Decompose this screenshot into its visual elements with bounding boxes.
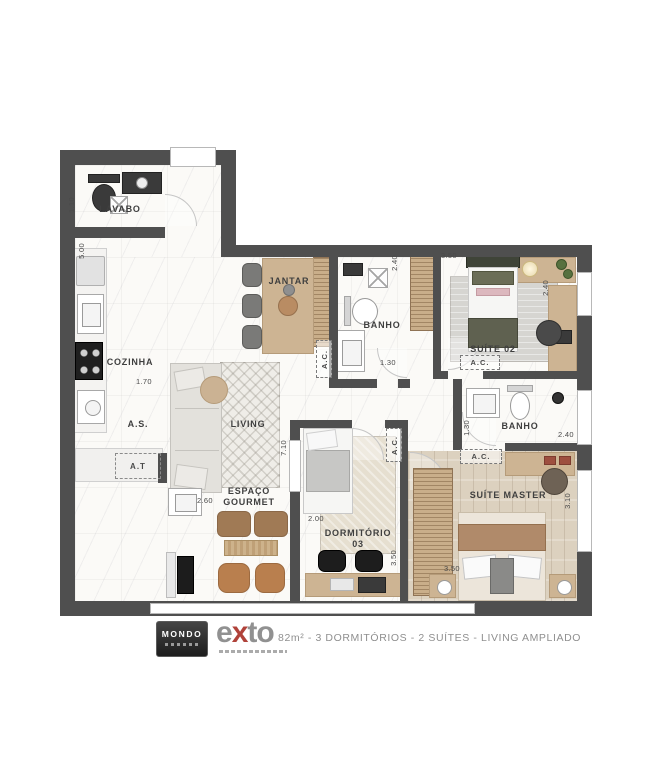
banho2-toilet [510, 392, 530, 420]
vanity-accessory [559, 456, 571, 465]
dim-lavabo-width: 1.10 [67, 197, 76, 213]
entry-door [170, 147, 216, 167]
banho2-window [577, 390, 592, 445]
nightstand-lamp [437, 580, 452, 595]
banho1-shower-head [343, 263, 363, 276]
plant-icon [563, 269, 573, 279]
dorm03-label-line1: DORMITÓRIO [308, 528, 408, 539]
dim-dorm03-width: 2.00 [308, 514, 324, 523]
banho1-vanity [337, 330, 365, 372]
ac-label: A.C. [320, 350, 329, 369]
room-label-jantar: JANTAR [259, 276, 319, 287]
ac-box-banho2: A.C. [460, 449, 502, 464]
washing-machine [77, 390, 105, 424]
dim-master-width: 3.50 [444, 564, 460, 573]
sofa-pillow [174, 464, 209, 490]
dim-banho2-height: 1.30 [462, 420, 471, 436]
floor-plan-page: LAVABO COZINHA JANTAR BANHO SUÍTE 02 LIV… [0, 0, 662, 768]
nightstand-lamp [557, 580, 572, 595]
ac-label: A.C. [390, 436, 399, 455]
dorm03-window [289, 440, 301, 492]
room-label-suite02: SUÍTE 02 [453, 344, 533, 355]
dim-suite02-width: 3.50 [441, 251, 457, 260]
suite-master-blanket [458, 524, 546, 551]
dim-banho1-height: 2.40 [390, 255, 399, 271]
wall-dorm03-top [290, 420, 352, 428]
dim-cozinha-height: 5.00 [77, 243, 86, 259]
gourmet-pouf [254, 511, 288, 537]
exto-letter-x: x [232, 616, 248, 649]
suite02-lamp [522, 261, 538, 277]
gourmet-bench [224, 540, 278, 556]
suite02-pillow [472, 271, 514, 285]
table-decor-bowl [278, 296, 298, 316]
nightstand [549, 574, 576, 598]
wall-top-main [221, 245, 592, 257]
exto-letters-to: to [247, 616, 273, 649]
banho2-sink [466, 388, 500, 418]
wall-banho1-bottom [329, 379, 377, 388]
dim-cozinha-width: 1.70 [136, 377, 152, 386]
ac-box-jantar: A.C. [316, 340, 332, 378]
banho2-toilet-tank [507, 385, 533, 392]
room-label-banho2: BANHO [490, 421, 550, 432]
dim-banho1-width: 1.30 [380, 358, 396, 367]
label-area-tecnica: A.T [115, 453, 161, 479]
room-label-lavabo: LAVABO [85, 204, 155, 215]
mondo-logo: MONDO [156, 621, 208, 657]
banho1-toilet-tank [344, 296, 351, 326]
wall-banho2-left [453, 379, 462, 450]
dim-dorm03-height: 3.50 [389, 550, 398, 566]
living-side-table [200, 376, 228, 404]
room-label-living: LIVING [213, 419, 283, 430]
suite-master-window [577, 470, 592, 552]
wall-left [60, 150, 75, 616]
kitchen-sink [77, 294, 104, 334]
dorm03-chair [355, 550, 383, 572]
banho2-shower-head [552, 392, 564, 404]
wall-banho1-bottom-stub [398, 379, 410, 388]
dim-suite02-height: 2.40 [541, 280, 550, 296]
dorm03-monitor [358, 577, 386, 593]
exto-logo: exto [216, 616, 274, 650]
mondo-logo-tagline [165, 643, 199, 646]
fridge [76, 256, 105, 286]
wall-lavabo-bottom [75, 227, 165, 238]
suite-master-headboard-panel [490, 558, 514, 594]
ac-label: A.C. [471, 358, 490, 367]
wall-suite02-bottom-stub [433, 371, 448, 379]
dim-gourmet-width: 2.60 [197, 496, 213, 505]
kitchen-basin [82, 303, 101, 327]
gourmet-pouf [217, 511, 251, 537]
room-label-dormitorio03: DORMITÓRIO 03 [308, 528, 408, 550]
suite02-pink-cushion [476, 288, 510, 296]
room-label-cozinha: COZINHA [95, 357, 165, 368]
suite02-window [577, 272, 592, 316]
vanity-accessory [544, 456, 556, 465]
suite02-wardrobe [410, 253, 434, 331]
apartment-spec-text: 82m² - 3 DORMITÓRIOS - 2 SUÍTES - LIVING… [278, 632, 581, 644]
lavabo-basin [136, 177, 148, 189]
exto-logo-tagline [219, 650, 287, 653]
room-label-espaco-gourmet: ESPAÇO GOURMET [214, 486, 284, 508]
ac-box-suite02: A.C. [460, 355, 500, 370]
ac-label: A.C. [472, 452, 491, 461]
washer-door [85, 400, 101, 416]
banho2-basin [473, 394, 496, 414]
dorm03-blanket [306, 450, 350, 492]
exto-letter-e: e [216, 616, 232, 649]
nightstand [429, 574, 456, 598]
dining-chair [242, 294, 262, 318]
dim-living-height: 7.10 [279, 440, 288, 456]
mondo-logo-text: MONDO [162, 630, 203, 639]
label-area-servico: A.S. [118, 419, 158, 430]
gourmet-armchair [255, 563, 285, 593]
bottom-window [150, 603, 475, 614]
wall-suite02-bottom [483, 371, 592, 379]
tv-panel [166, 552, 176, 598]
dining-chair [242, 325, 262, 349]
suite02-chair [536, 320, 562, 346]
dorm03-label-line2: 03 [308, 539, 408, 550]
gourmet-basin [175, 494, 197, 512]
room-label-banho1: BANHO [352, 320, 412, 331]
lavabo-toilet-tank [88, 174, 120, 183]
banho1-shower-drain [368, 268, 388, 288]
gourmet-label-line2: GOURMET [214, 497, 284, 508]
banho1-basin [342, 340, 362, 366]
tv [177, 556, 194, 594]
dorm03-chair [318, 550, 346, 572]
room-label-suite-master: SUÍTE MASTER [448, 490, 568, 501]
ac-box-dorm03: A.C. [386, 428, 402, 462]
dim-master-height: 3.10 [563, 493, 572, 509]
gourmet-armchair [218, 563, 250, 593]
wall-suite02-left [433, 257, 441, 379]
gourmet-label-line1: ESPAÇO [214, 486, 284, 497]
wall-entry-right [221, 165, 236, 257]
dim-banho2-width: 2.40 [558, 430, 574, 439]
dorm03-notebook [330, 578, 354, 591]
